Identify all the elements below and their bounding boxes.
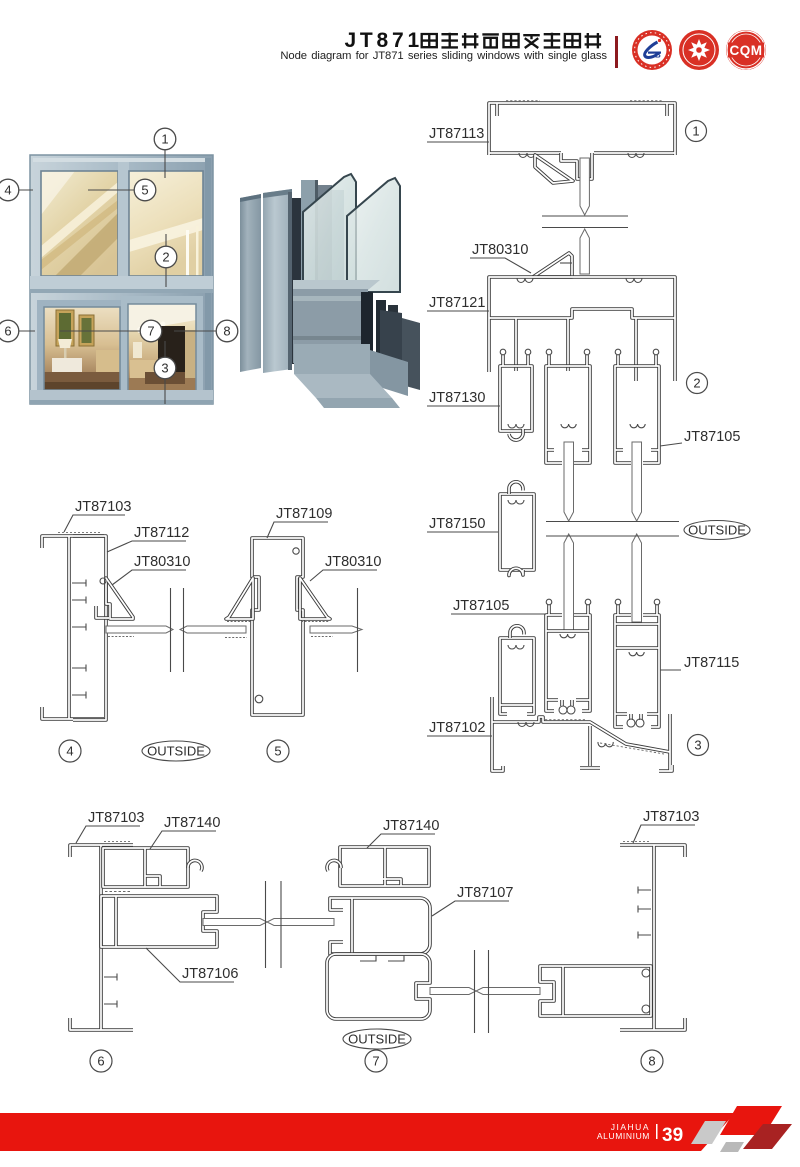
svg-text:1: 1 bbox=[692, 124, 699, 139]
svg-text:2: 2 bbox=[693, 376, 700, 391]
svg-text:JT87113: JT87113 bbox=[429, 126, 484, 142]
svg-text:OUTSIDE: OUTSIDE bbox=[688, 523, 746, 538]
svg-text:5: 5 bbox=[274, 744, 281, 759]
svg-text:JT80310: JT80310 bbox=[134, 554, 190, 570]
svg-text:JT87105: JT87105 bbox=[453, 598, 509, 614]
svg-text:JT87130: JT87130 bbox=[429, 390, 485, 406]
svg-text:3: 3 bbox=[694, 738, 701, 753]
svg-text:7: 7 bbox=[372, 1054, 379, 1069]
svg-text:4: 4 bbox=[66, 744, 73, 759]
svg-text:JT87103: JT87103 bbox=[643, 809, 699, 825]
svg-text:JT87106: JT87106 bbox=[182, 966, 238, 982]
svg-text:JT87105: JT87105 bbox=[684, 429, 740, 445]
svg-text:JT87121: JT87121 bbox=[429, 295, 485, 311]
svg-text:JT87150: JT87150 bbox=[429, 516, 485, 532]
svg-text:OUTSIDE: OUTSIDE bbox=[348, 1032, 406, 1047]
svg-text:8: 8 bbox=[648, 1054, 655, 1069]
svg-text:JT87103: JT87103 bbox=[88, 810, 144, 826]
svg-text:JT87107: JT87107 bbox=[457, 885, 513, 901]
svg-text:JT87112: JT87112 bbox=[134, 525, 189, 541]
svg-text:JT80310: JT80310 bbox=[472, 242, 528, 258]
svg-text:JT87140: JT87140 bbox=[383, 818, 439, 834]
svg-text:39: 39 bbox=[662, 1125, 683, 1146]
svg-text:JT80310: JT80310 bbox=[325, 554, 381, 570]
svg-text:JT87140: JT87140 bbox=[164, 815, 220, 831]
svg-text:JT87102: JT87102 bbox=[429, 720, 485, 736]
svg-text:JT87109: JT87109 bbox=[276, 506, 332, 522]
svg-text:ALUMINIUM: ALUMINIUM bbox=[597, 1131, 650, 1141]
svg-text:JT87115: JT87115 bbox=[684, 655, 739, 671]
svg-text:OUTSIDE: OUTSIDE bbox=[147, 744, 205, 759]
svg-text:6: 6 bbox=[97, 1054, 104, 1069]
svg-text:JT87103: JT87103 bbox=[75, 499, 131, 515]
